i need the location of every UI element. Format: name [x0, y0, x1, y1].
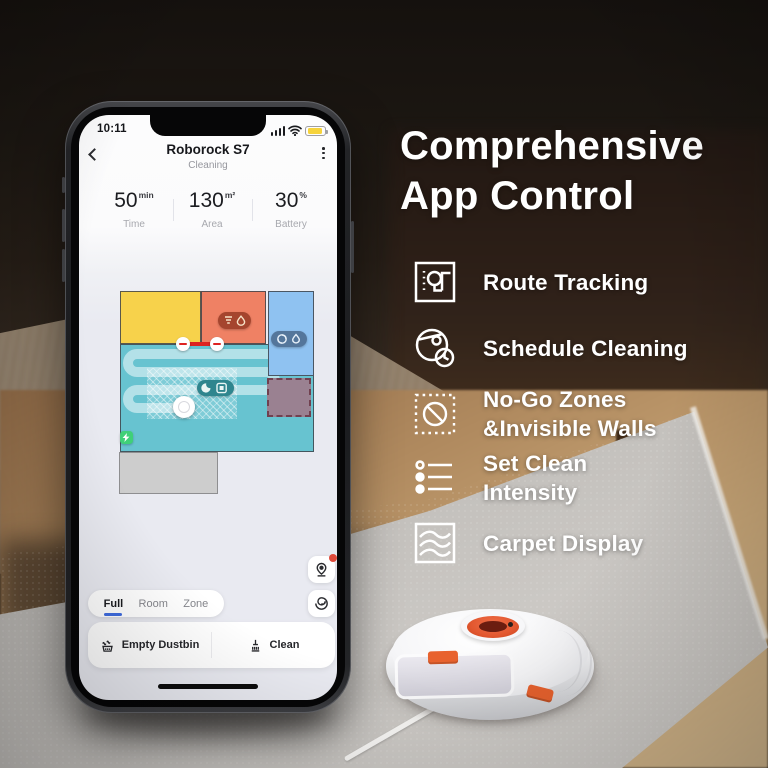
vignette	[0, 0, 768, 768]
marketing-image: Comprehensive App Control Route Tracking…	[0, 0, 768, 768]
